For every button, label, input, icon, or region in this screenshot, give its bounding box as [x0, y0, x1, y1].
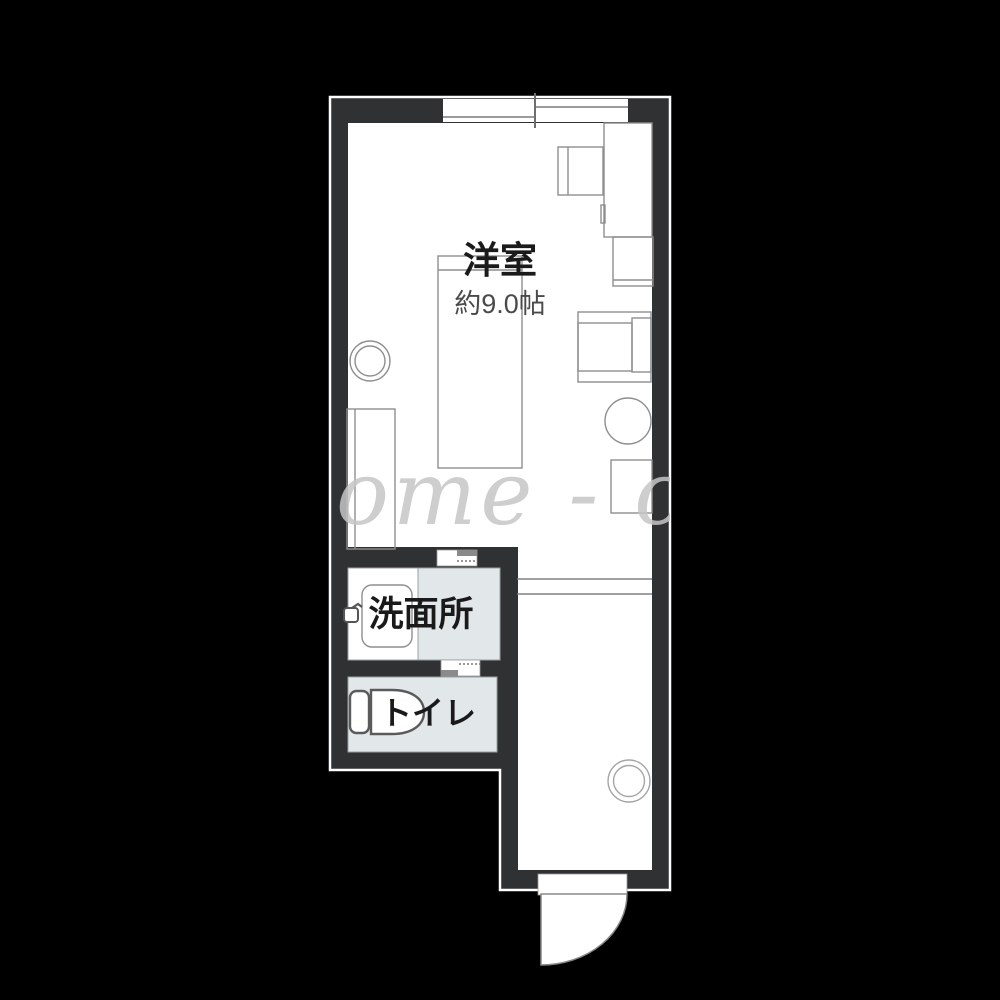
floor-plan-page: ome - cl 洋室 約9.0帖 洗面所 トイレ: [0, 0, 1000, 1000]
entrance-threshold: [538, 874, 627, 895]
western-room-size-label: 約9.0帖: [454, 289, 546, 319]
toilet-door: [441, 660, 480, 676]
western-room-label: 洋室: [463, 239, 537, 281]
washroom-door-panel: [457, 550, 477, 556]
toilet-tank: [350, 691, 369, 733]
watermark-text: ome - cl: [336, 442, 720, 545]
faucet-body: [344, 608, 358, 622]
toilet-door-panel: [441, 670, 458, 676]
washroom-label: 洗面所: [368, 595, 473, 634]
washroom-door: [437, 550, 477, 566]
toilet-label: トイレ: [380, 695, 476, 731]
floor-plan-canvas: ome - cl 洋室 約9.0帖 洗面所 トイレ: [0, 0, 1000, 1000]
hallway-floor: [518, 547, 652, 870]
